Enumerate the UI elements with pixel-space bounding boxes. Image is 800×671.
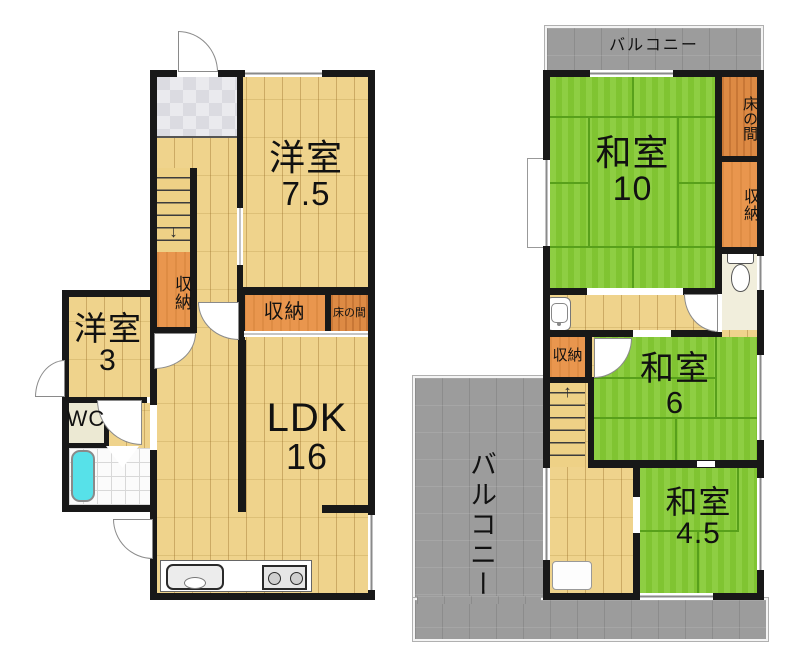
room-label-yoshitsu-7-5: 洋室 7.5	[244, 140, 368, 210]
room-label-washitsu-10: 和室 10	[550, 135, 715, 206]
wall	[715, 247, 757, 254]
wall	[62, 290, 157, 297]
window	[543, 160, 550, 246]
door-opening	[150, 405, 157, 450]
window	[245, 70, 322, 77]
wall	[722, 156, 757, 162]
balcony-top-label: バルコニー	[545, 38, 763, 54]
window	[543, 468, 550, 560]
room-label-ldk: LDK 16	[246, 398, 368, 476]
sliding-door-opening	[587, 288, 683, 295]
room-label-yoshitsu-3: 洋室 3	[66, 312, 150, 376]
stairs-up-arrow-icon: ↑	[550, 382, 585, 402]
room-size: 16	[246, 439, 368, 476]
window	[757, 478, 764, 570]
wall	[150, 593, 375, 600]
room-name: 洋室	[244, 140, 368, 177]
back-door-swing-icon	[113, 519, 153, 559]
wall	[585, 337, 592, 381]
wall	[62, 443, 109, 448]
closet-under-stairs-label: 収納	[157, 262, 190, 324]
opening	[633, 497, 640, 533]
genkan-step-line	[157, 136, 237, 138]
wall	[588, 460, 762, 468]
tatami-line	[632, 77, 634, 118]
wall	[150, 70, 157, 297]
tokonoma-2f-label: 床の間	[722, 84, 757, 152]
window	[640, 593, 713, 600]
wall	[237, 287, 375, 295]
closet-hall-2f-label: 収納	[550, 348, 585, 363]
sink-bowl-icon	[184, 577, 206, 589]
sliding-door-opening	[633, 330, 671, 337]
washbasin-bowl-icon	[551, 303, 568, 323]
room-name: 洋室	[66, 312, 150, 346]
balcony-main-label: バルコニー	[450, 430, 494, 620]
stove-icon	[262, 565, 307, 590]
floorplan-canvas: ↓	[0, 0, 800, 671]
tatami-line	[632, 246, 634, 288]
sliding-door	[237, 208, 243, 265]
washbasin-drain-icon	[557, 322, 561, 326]
room-label-washitsu-6: 和室 6	[600, 352, 750, 418]
window	[368, 515, 375, 590]
entry-genkan-tile	[157, 77, 237, 138]
room-size: 4.5	[640, 519, 757, 550]
room-size: 10	[550, 172, 715, 207]
room-name: 和室	[600, 352, 750, 387]
tatami-line	[675, 419, 677, 460]
room-size: 6	[600, 387, 750, 419]
opening	[697, 461, 715, 467]
wc-label: WC	[66, 408, 106, 430]
room-name: 和室	[640, 486, 757, 519]
bay-window-icon	[527, 158, 544, 248]
burner-icon	[268, 572, 281, 585]
window	[590, 70, 673, 77]
room-size: 7.5	[244, 177, 368, 211]
wall	[238, 340, 246, 512]
room-size: 3	[66, 346, 150, 377]
wall	[62, 505, 157, 512]
wall	[543, 377, 592, 383]
room-label-washitsu-4-5: 和室 4.5	[640, 486, 757, 549]
appliance-space-icon	[552, 561, 592, 590]
tokonoma-1f-label: 床の間	[330, 308, 369, 319]
room-name: LDK	[246, 398, 368, 439]
wall	[322, 505, 375, 513]
closet-center-label: 収納	[244, 302, 325, 322]
wall	[588, 377, 594, 467]
window	[757, 355, 764, 440]
sliding-door	[244, 331, 368, 337]
stairs-down-arrow-icon: ↓	[157, 222, 190, 242]
room-name: 和室	[550, 135, 715, 172]
wall	[190, 252, 197, 332]
toilet-bowl-icon	[731, 264, 750, 292]
entry-door-swing-icon	[178, 31, 218, 72]
closet-right-2f-label: 収納	[722, 172, 757, 238]
bathtub-icon	[71, 450, 95, 502]
burner-icon	[290, 572, 303, 585]
window	[757, 256, 764, 290]
wall	[190, 168, 197, 252]
window-swing-icon	[35, 360, 65, 397]
